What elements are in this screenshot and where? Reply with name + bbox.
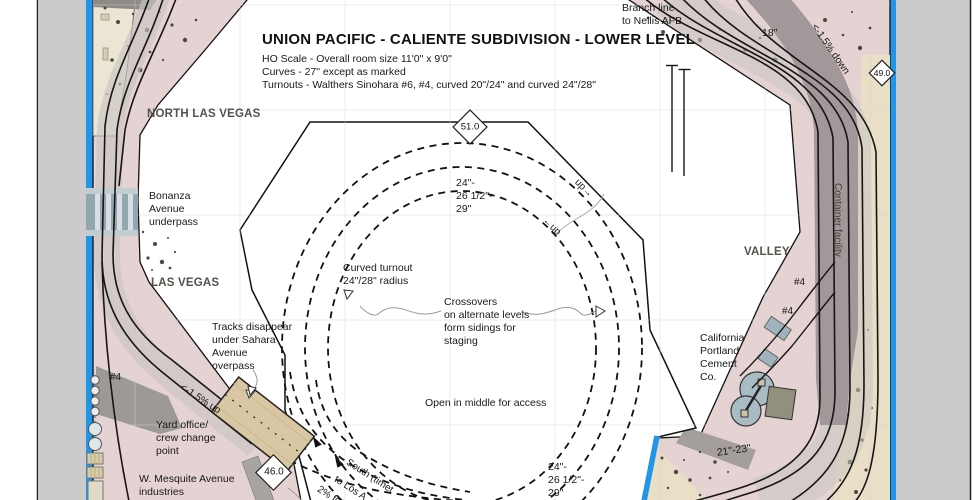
label-bonanza-underpass: Bonanza Avenue underpass xyxy=(149,190,198,229)
label-container-facility: Container facility xyxy=(831,183,843,257)
bonanza-underpass xyxy=(86,188,138,236)
subtitle-scale: HO Scale - Overall room size 11'0" x 9'0… xyxy=(262,53,452,66)
subtitle-turnouts: Turnouts - Walthers Sinohara #6, #4, cur… xyxy=(262,79,596,92)
label-crossovers: Crossovers on alternate levels form sidi… xyxy=(444,296,529,348)
label-open-middle: Open in middle for access xyxy=(425,397,546,410)
label-radii-center: 24"- 26 1/2"- 29" xyxy=(456,177,492,216)
page-title: UNION PACIFIC - CALIENTE SUBDIVISION - L… xyxy=(262,31,695,50)
subtitle-curves: Curves - 27" except as marked xyxy=(262,66,406,79)
track-plan-canvas: UNION PACIFIC - CALIENTE SUBDIVISION - L… xyxy=(0,0,980,500)
label-turnout-4-valley-2: #4 xyxy=(782,306,793,318)
label-yard-office: Yard office/ crew change point xyxy=(156,419,216,458)
elevation-46: 46.0 xyxy=(264,467,283,478)
elevation-51: 51.0 xyxy=(461,122,480,133)
label-turnout-4-left: #4 xyxy=(110,372,121,384)
cement-building xyxy=(765,386,796,419)
label-radii-south: 24"- 26 1/2"- 29" xyxy=(548,461,584,500)
elevation-49: 49.0 xyxy=(874,68,891,78)
label-radius-18: 18" xyxy=(762,27,777,40)
label-sahara-overpass: Tracks disappear under Sahara Avenue ove… xyxy=(212,321,292,373)
label-curved-turnout: Curved turnout 24"/28" radius xyxy=(343,262,412,288)
region-label-valley: VALLEY xyxy=(744,245,790,259)
region-label-north-las-vegas: NORTH LAS VEGAS xyxy=(147,107,261,121)
label-branch-nellis: Branch line to Nellis AFB xyxy=(622,2,682,28)
label-mesquite-industries: W. Mesquite Avenue industries xyxy=(139,473,235,499)
label-cement-co: California Portland Cement Co. xyxy=(700,332,744,384)
region-label-las-vegas: LAS VEGAS xyxy=(151,276,219,290)
label-turnout-4-valley-1: #4 xyxy=(794,277,805,289)
